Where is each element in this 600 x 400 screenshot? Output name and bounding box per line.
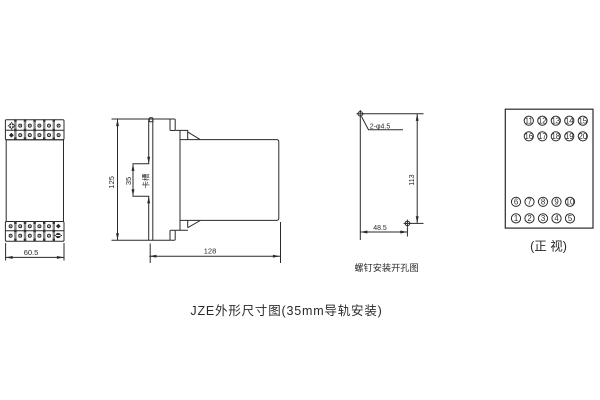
svg-text:卡槽: 卡槽 — [140, 173, 150, 188]
svg-text:5: 5 — [568, 214, 573, 223]
svg-text:35: 35 — [124, 177, 133, 185]
svg-text:7: 7 — [527, 198, 531, 207]
svg-text:14: 14 — [565, 117, 574, 126]
svg-text:17: 17 — [538, 132, 547, 141]
svg-text:60.5: 60.5 — [24, 248, 39, 257]
svg-text:19: 19 — [565, 132, 574, 141]
svg-text:2: 2 — [527, 214, 531, 223]
svg-text:113: 113 — [409, 174, 416, 185]
svg-text:18: 18 — [551, 132, 560, 141]
svg-text:125: 125 — [107, 176, 116, 189]
svg-text:11: 11 — [525, 117, 533, 126]
svg-text:12: 12 — [538, 117, 547, 126]
svg-text:16: 16 — [524, 132, 533, 141]
svg-text:2-φ4.5: 2-φ4.5 — [370, 124, 391, 131]
svg-text:9: 9 — [554, 198, 558, 207]
svg-text:20: 20 — [578, 132, 587, 141]
svg-text:(正 视): (正 视) — [530, 238, 567, 253]
svg-text:13: 13 — [551, 117, 560, 126]
svg-text:3: 3 — [541, 214, 545, 223]
svg-text:1: 1 — [514, 214, 518, 223]
svg-text:128: 128 — [204, 247, 217, 256]
svg-text:4: 4 — [554, 214, 559, 223]
svg-text:6: 6 — [514, 198, 518, 207]
svg-text:JZE外形尺寸图(35mm导轨安装): JZE外形尺寸图(35mm导轨安装) — [190, 303, 382, 318]
svg-text:15: 15 — [578, 117, 587, 126]
svg-text:10: 10 — [566, 198, 575, 207]
svg-text:48.5: 48.5 — [373, 225, 387, 232]
svg-text:螺钉安装开孔图: 螺钉安装开孔图 — [354, 262, 418, 273]
svg-text:8: 8 — [541, 198, 545, 207]
